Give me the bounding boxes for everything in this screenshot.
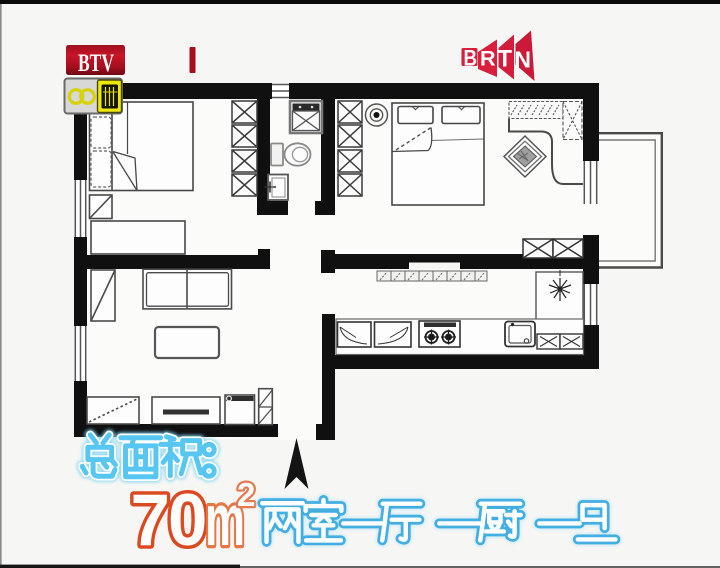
svg-text:2: 2	[237, 476, 255, 513]
svg-text:70: 70	[131, 480, 206, 561]
